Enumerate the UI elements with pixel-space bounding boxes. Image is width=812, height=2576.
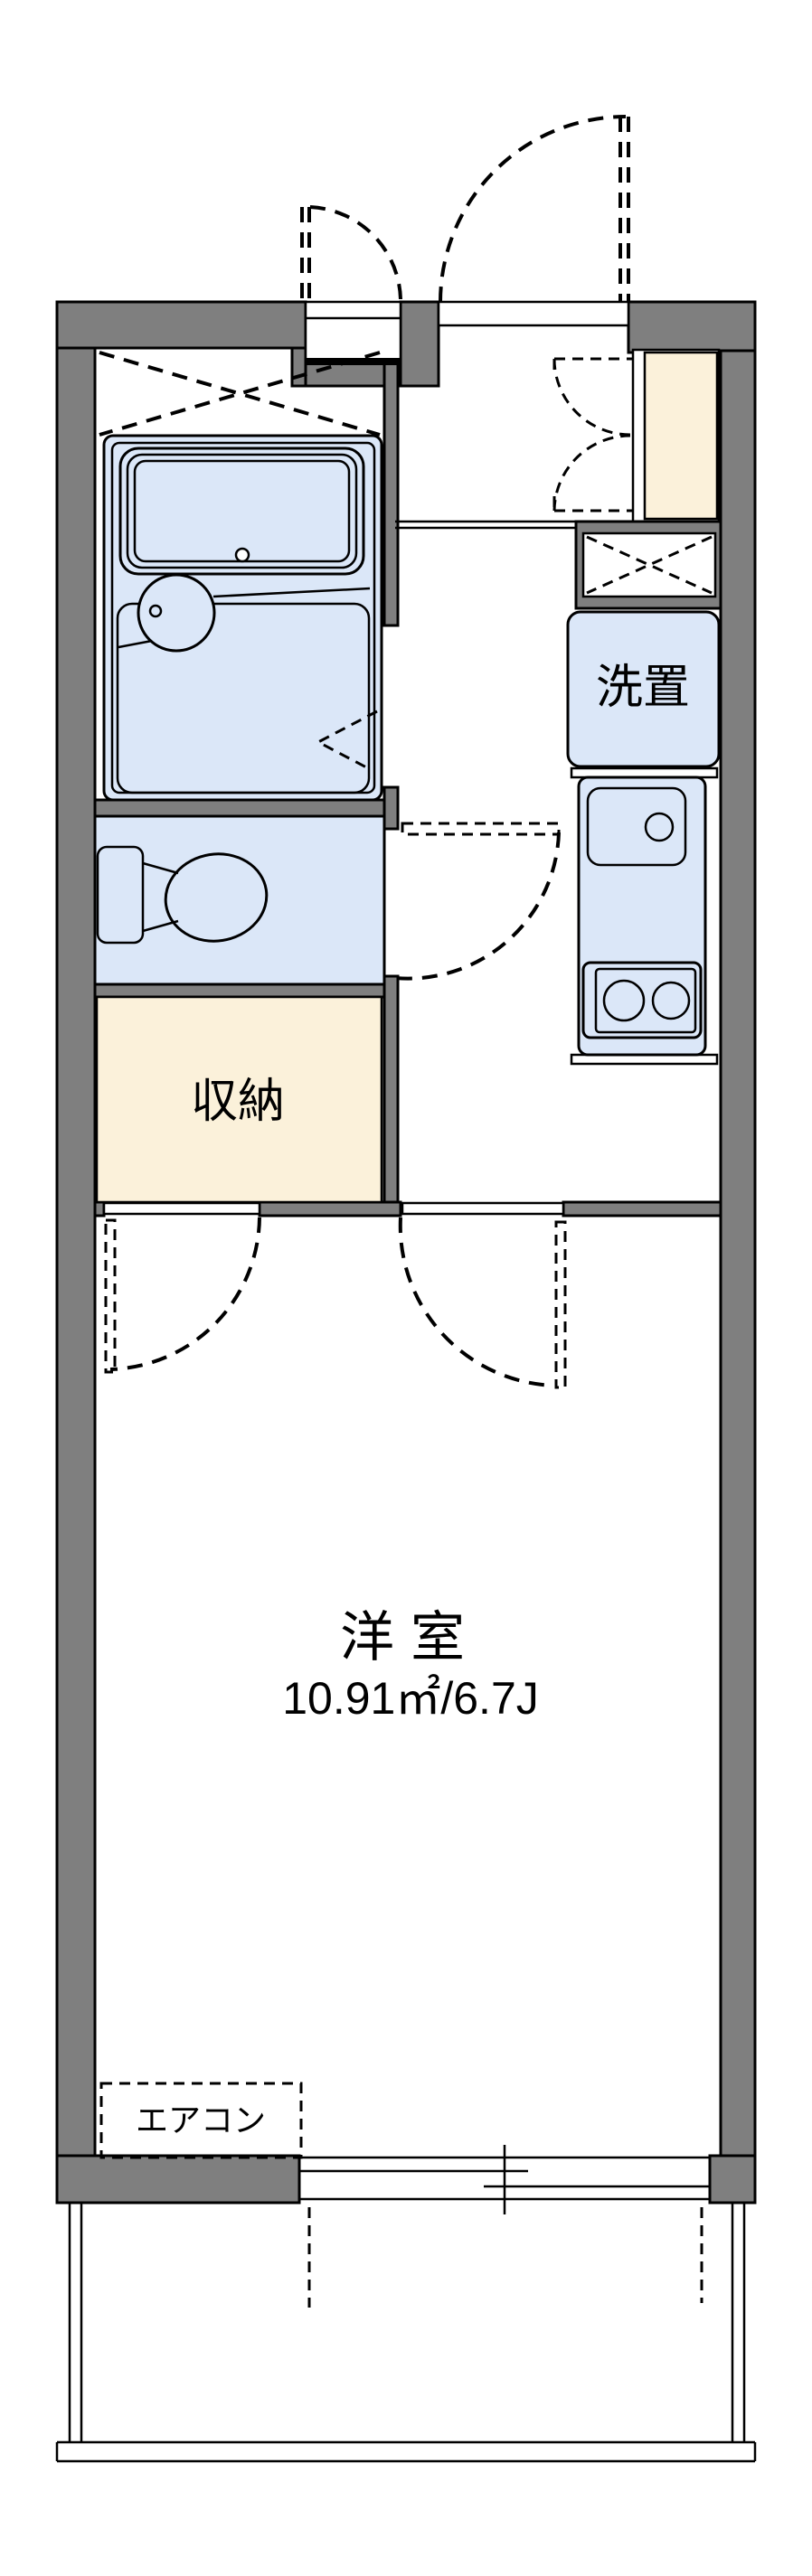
toilet-door-swing-arc [395, 832, 559, 979]
western-room-label: 洋室 [340, 1607, 481, 1668]
wall-segment [710, 2156, 755, 2203]
niche-box [583, 533, 715, 597]
door-head [104, 1203, 260, 1214]
wall-segment [95, 1202, 104, 1216]
bathroom [99, 353, 382, 800]
floorplan: 洗置 [0, 0, 812, 2576]
room-doors [104, 1203, 565, 1387]
storage-door-leaf [106, 1220, 115, 1372]
room-door-swing-arc [401, 1217, 553, 1386]
wall-segment [95, 984, 395, 997]
wall-segment [57, 302, 95, 2203]
western-room: 洋室 10.91㎡/6.7J エアコン [101, 1607, 539, 2158]
floorplan-canvas: 洗置 [0, 0, 812, 2576]
wall-segment [563, 1202, 721, 1216]
aircon-label: エアコン [136, 2101, 266, 2139]
shoe-cabinet [554, 350, 719, 522]
wall-segment [57, 2156, 299, 2203]
storage-room: 収納 [97, 997, 382, 1202]
wall-segment [384, 976, 398, 1216]
wall-segment [260, 1202, 401, 1216]
western-room-area: 10.91㎡/6.7J [282, 1673, 539, 1724]
room-door-leaf [556, 1222, 565, 1387]
wall-segment [95, 800, 395, 816]
storage-label: 収納 [191, 1076, 285, 1128]
crossed-niche [576, 522, 721, 608]
laundry-label: 洗置 [596, 662, 690, 714]
laundry-space: 洗置 [568, 612, 719, 766]
wall-segment [57, 302, 306, 348]
wall-segment [721, 351, 755, 2203]
shoe-cabinet-face [645, 353, 717, 519]
wall-segment [401, 302, 439, 386]
toilet-room [95, 816, 559, 984]
wall-segment [384, 348, 398, 625]
alcove [306, 302, 401, 363]
wall-segment [292, 348, 306, 386]
wall-segment [628, 302, 755, 353]
cabinet-door-arc [554, 436, 630, 511]
alcove-door-swing-arc [309, 207, 401, 299]
cabinet-door-arc [554, 359, 630, 435]
wall-segment [384, 787, 398, 829]
door-head [402, 1203, 563, 1214]
toilet-floor [95, 816, 384, 984]
storage-door-swing-arc [110, 1217, 260, 1369]
entrance-door-swing-arc [440, 117, 626, 302]
toilet-door-leaf [402, 823, 559, 834]
entrance-door-sill [439, 302, 628, 325]
drain [236, 549, 249, 561]
kitchen [571, 768, 717, 1064]
